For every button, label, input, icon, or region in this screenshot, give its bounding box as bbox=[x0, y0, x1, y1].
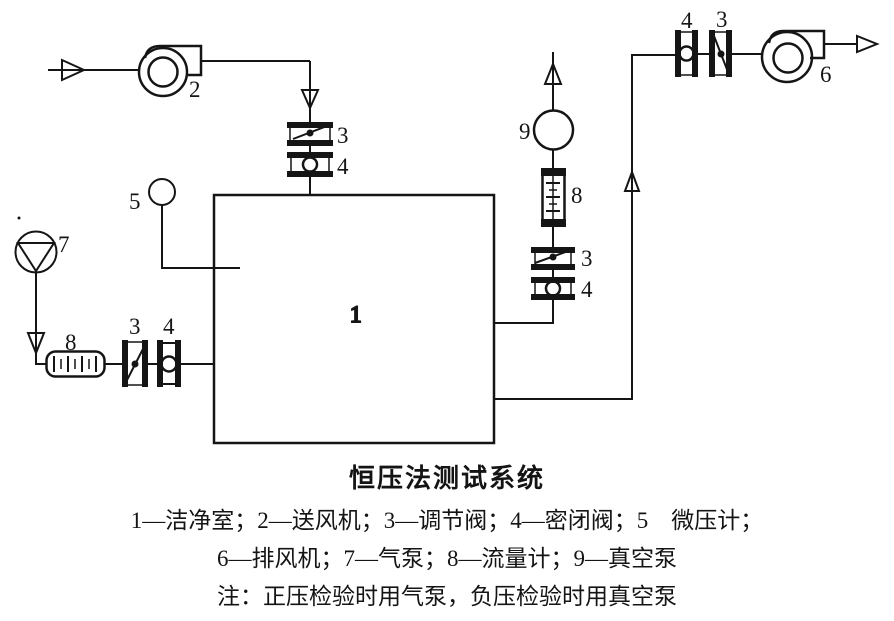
outlet-sealing-valve-label: 4 bbox=[681, 8, 693, 33]
outlet-regulating-valve-icon: 3 bbox=[709, 7, 732, 77]
vacuum-pump-icon: 9 bbox=[519, 111, 573, 150]
top-regulating-valve-label: 3 bbox=[337, 123, 349, 148]
left-flowmeter-icon: 8 bbox=[47, 330, 105, 377]
right-sealing-valve-icon: 4 bbox=[531, 277, 593, 302]
legend-line-2: 6—排风机；7—气泵；8—流量计；9—真空泵 bbox=[0, 539, 894, 573]
right-sealing-valve-label: 4 bbox=[581, 277, 593, 302]
legend-line-1: 1—洁净室；2—送风机；3—调节阀；4—密闭阀；5 微压计； bbox=[0, 501, 894, 535]
outlet-regulating-valve-label: 3 bbox=[716, 7, 728, 32]
left-regulating-valve-label: 3 bbox=[129, 314, 141, 339]
left-flowmeter-label: 8 bbox=[65, 330, 77, 355]
top-sealing-valve-icon: 4 bbox=[287, 152, 349, 179]
outlet-arrow-icon bbox=[857, 36, 877, 52]
clean-room-chamber: 1 bbox=[214, 195, 494, 443]
micro-manometer-icon: 5 bbox=[129, 179, 175, 214]
supply-fan-label: 2 bbox=[189, 77, 201, 102]
figure-title: 恒压法测试系统 bbox=[0, 458, 894, 495]
supply-fan-icon: 2 bbox=[139, 46, 201, 102]
chamber-label: 1 bbox=[350, 302, 362, 327]
right-regulating-valve-icon: 3 bbox=[531, 246, 593, 271]
top-regulating-valve-icon: 3 bbox=[287, 122, 349, 148]
vacuum-pump-label: 9 bbox=[519, 119, 531, 144]
outlet-sealing-valve-icon: 4 bbox=[675, 8, 698, 77]
left-regulating-valve-icon: 3 bbox=[122, 314, 148, 387]
top-sealing-valve-label: 4 bbox=[337, 154, 349, 179]
right-flowmeter-label: 8 bbox=[571, 183, 583, 208]
exhaust-fan-label: 6 bbox=[820, 62, 832, 87]
system-schematic: 1 2 3 4 5 7 8 bbox=[0, 0, 894, 455]
air-pump-icon: 7 bbox=[16, 217, 70, 273]
figure-note: 注：正压检验时用气泵，负压检验时用真空泵 bbox=[0, 577, 894, 611]
exhaust-fan-icon: 6 bbox=[762, 31, 832, 87]
left-sealing-valve-label: 4 bbox=[163, 314, 175, 339]
right-regulating-valve-label: 3 bbox=[581, 246, 593, 271]
micro-manometer-label: 5 bbox=[129, 189, 141, 214]
right-flowmeter-icon: 8 bbox=[541, 168, 583, 227]
air-pump-label: 7 bbox=[58, 232, 70, 257]
left-sealing-valve-icon: 4 bbox=[157, 314, 181, 387]
